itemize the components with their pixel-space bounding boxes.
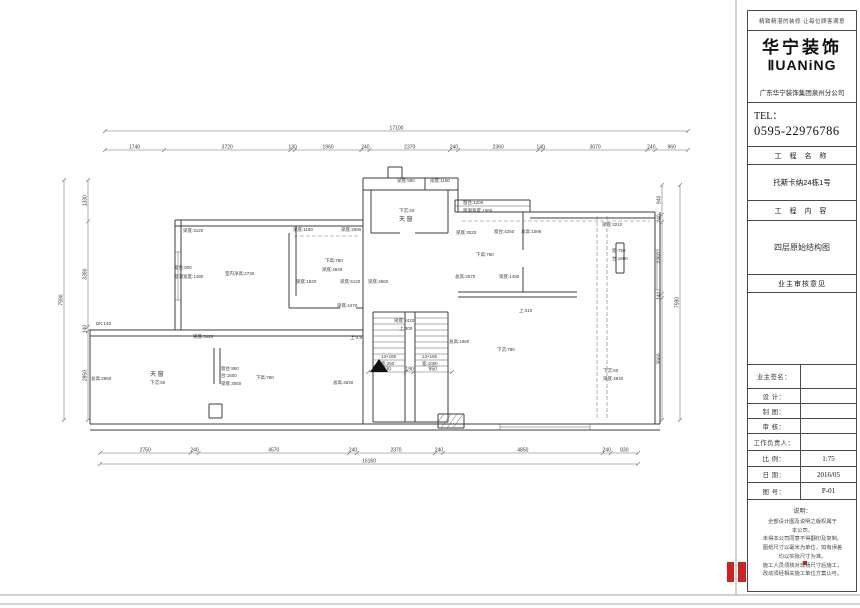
title-block: 精致精湛的装修 让每位顾客满意 华宁装饰 ⅡUANiNG 广东华宁装饰集团泉州分… <box>747 10 857 592</box>
svg-text:总高:2570: 总高:2570 <box>455 273 476 280</box>
svg-text:上:4.8: 上:4.8 <box>350 334 363 340</box>
svg-text:130: 130 <box>288 145 297 151</box>
table-row: 工作负责人： <box>748 434 856 451</box>
svg-text:总高:1960: 总高:1960 <box>449 338 470 345</box>
svg-text:240: 240 <box>435 448 444 454</box>
svg-text:3720: 3720 <box>222 145 233 151</box>
row-value <box>800 365 856 388</box>
notes-block: 说明： 全部设计图及说明之版权属于本公司，未得本公司同意不得翻印及复制。图纸尺寸… <box>748 500 856 581</box>
svg-text:3860: 3860 <box>657 353 663 364</box>
note-line: 本公司， <box>754 527 851 536</box>
svg-text:天 窗: 天 窗 <box>150 370 164 378</box>
note-line: 全部设计图及说明之版权属于 <box>754 518 851 527</box>
svg-text:窗台:950: 窗台:950 <box>221 365 239 372</box>
svg-text:2260: 2260 <box>657 252 663 263</box>
svg-text:总高:4840: 总高:4840 <box>333 379 354 386</box>
svg-text:240: 240 <box>603 448 612 454</box>
svg-text:窗台:4250: 窗台:4250 <box>494 228 515 235</box>
project-name-value: 托斯卡纳24栋1号 <box>748 165 856 201</box>
table-row: 图 号：P-01 <box>748 483 856 500</box>
svg-text:960: 960 <box>668 145 677 151</box>
svg-text:窗台:900: 窗台:900 <box>174 264 192 271</box>
svg-text:3070: 3070 <box>590 145 601 151</box>
row-label: 工作负责人： <box>748 434 800 450</box>
svg-text:940: 940 <box>657 195 663 204</box>
svg-text:4570: 4570 <box>268 448 279 454</box>
svg-text:梁底:5120: 梁底:5120 <box>340 278 361 285</box>
tel-number: 0595-22976786 <box>754 123 840 139</box>
svg-text:梁底:3050: 梁底:3050 <box>221 380 242 387</box>
row-label: 审 核： <box>748 419 800 433</box>
svg-text:240: 240 <box>349 448 358 454</box>
table-row: 业主签名： <box>748 365 856 389</box>
row-value <box>800 434 856 450</box>
svg-text:下沉:780: 下沉:780 <box>497 346 515 353</box>
svg-text:下高:780: 下高:780 <box>256 374 274 381</box>
table-row: 日 期：2016/05 <box>748 467 856 483</box>
svg-text:240: 240 <box>657 214 663 223</box>
row-label: 比 例： <box>748 451 800 466</box>
svg-text:窗-750: 窗-750 <box>612 247 626 254</box>
logo-chinese: 华宁装饰 <box>762 39 842 58</box>
row-label: 日 期： <box>748 467 800 482</box>
row-value: 1:75 <box>800 451 856 466</box>
note-line: 改动须经相关施工单位方案认可。 <box>754 570 851 579</box>
row-value <box>800 389 856 403</box>
svg-text:窗洞宽度:1490: 窗洞宽度:1490 <box>174 273 204 280</box>
svg-text:梁底:1190: 梁底:1190 <box>430 177 450 184</box>
project-content-header: 工 程 内 容 <box>748 201 856 221</box>
svg-text:梁底:1480: 梁底:1480 <box>499 273 520 280</box>
red-stamp-mark <box>738 562 746 582</box>
svg-text:7590: 7590 <box>675 297 681 308</box>
signature-table: 业主签名：设 计：制 图：审 核：工作负责人：比 例：1:75日 期：2016/… <box>748 365 856 500</box>
svg-text:梁底:4470: 梁底:4470 <box>337 302 358 309</box>
row-value: P-01 <box>800 483 856 499</box>
svg-text:1330: 1330 <box>83 195 89 206</box>
svg-text:梁底:3210: 梁底:3210 <box>602 221 623 228</box>
svg-text:下高:780: 下高:780 <box>325 257 343 264</box>
svg-text:天 窗: 天 窗 <box>399 215 413 223</box>
table-row: 审 核： <box>748 419 856 434</box>
drawing-sheet: 1710017403720130196024023702402360140307… <box>0 0 860 608</box>
table-row: 制 图： <box>748 404 856 419</box>
svg-text:上:300: 上:300 <box>399 325 413 331</box>
red-stamp-mark <box>727 562 734 582</box>
svg-text:梁底:1190: 梁底:1190 <box>293 226 313 233</box>
notes-title: 说明： <box>754 506 851 515</box>
row-value: 2016/05 <box>800 467 856 482</box>
notes-lines: 全部设计图及说明之版权属于本公司，未得本公司同意不得翻印及复制。图纸尺寸以毫米为… <box>754 518 851 579</box>
svg-text:2360: 2360 <box>493 145 504 151</box>
svg-text:窗台:1200: 窗台:1200 <box>463 199 484 206</box>
svg-text:下沉:50: 下沉:50 <box>150 379 166 386</box>
svg-text:2750: 2750 <box>140 448 151 454</box>
svg-text:240: 240 <box>361 145 370 151</box>
svg-text:台:1800: 台:1800 <box>612 255 628 262</box>
svg-text:下沉:20: 下沉:20 <box>399 207 415 214</box>
svg-text:台:1500: 台:1500 <box>221 372 237 379</box>
svg-text:梁底:4840: 梁底:4840 <box>603 375 624 382</box>
svg-text:梁底:2420: 梁底:2420 <box>394 317 415 324</box>
svg-text:4850: 4850 <box>517 448 528 454</box>
row-label: 业主签名： <box>748 365 800 388</box>
svg-text:梁底:4840: 梁底:4840 <box>322 266 343 273</box>
svg-text:7590: 7590 <box>59 294 65 305</box>
row-label: 图 号： <box>748 483 800 499</box>
svg-text:140: 140 <box>657 291 663 300</box>
telephone-block: TEL： 0595-22976786 <box>748 103 856 147</box>
svg-text:950: 950 <box>429 367 438 373</box>
svg-text:13×180: 13×180 <box>381 354 397 359</box>
svg-text:梁底:3020: 梁底:3020 <box>456 229 477 236</box>
svg-text:梁底:3120: 梁底:3120 <box>183 227 204 234</box>
svg-text:下高:780: 下高:780 <box>476 251 494 258</box>
row-value <box>800 404 856 418</box>
svg-text:DK:140: DK:140 <box>96 321 112 326</box>
svg-text:17100: 17100 <box>390 126 404 132</box>
company-name: 广东华宁装饰集团泉州分公司 <box>748 81 856 103</box>
note-line: 均以实际尺寸为准。 <box>754 553 851 562</box>
logo-latin: ⅡUANiNG <box>767 58 836 73</box>
svg-text:梁底:3120: 梁底:3120 <box>193 333 214 340</box>
floor-plan-svg: 1710017403720130196024023702402360140307… <box>0 0 860 608</box>
svg-text:总高:1098: 总高:1098 <box>521 228 542 235</box>
owner-review-header: 业主审核意见 <box>748 275 856 293</box>
svg-text:梁底:4960: 梁底:4960 <box>368 278 389 285</box>
svg-text:240: 240 <box>450 145 459 151</box>
note-line: 施工人员须核对现场尺寸后施工， <box>754 562 851 571</box>
svg-text:宽:1050: 宽:1050 <box>422 360 438 367</box>
row-value <box>800 419 856 433</box>
svg-text:240: 240 <box>190 448 199 454</box>
svg-text:240: 240 <box>647 145 656 151</box>
svg-text:830: 830 <box>620 448 629 454</box>
company-logo: 华宁装饰 ⅡUANiNG <box>748 31 856 81</box>
svg-text:上:310: 上:310 <box>519 307 533 313</box>
slogan-text: 精致精湛的装修 让每位顾客满意 <box>748 11 856 31</box>
svg-text:2850: 2850 <box>83 370 89 381</box>
svg-text:窗洞宽度:1560: 窗洞宽度:1560 <box>463 207 493 214</box>
svg-text:16160: 16160 <box>362 459 376 465</box>
svg-text:梁底:1820: 梁底:1820 <box>296 278 317 285</box>
svg-text:2370: 2370 <box>404 145 415 151</box>
owner-review-area <box>748 293 856 365</box>
table-row: 比 例：1:75 <box>748 451 856 467</box>
project-content-value: 四层原始结构图 <box>748 221 856 275</box>
note-line: 未得本公司同意不得翻印及复制。 <box>754 535 851 544</box>
svg-text:1960: 1960 <box>323 145 334 151</box>
svg-text:总高:2850: 总高:2850 <box>91 375 112 382</box>
svg-text:梁底:2600: 梁底:2600 <box>341 226 362 233</box>
tel-label: TEL： <box>754 110 782 123</box>
row-label: 设 计： <box>748 389 800 403</box>
svg-text:2370: 2370 <box>390 448 401 454</box>
svg-text:13×180: 13×180 <box>422 354 438 359</box>
svg-text:140: 140 <box>536 145 545 151</box>
svg-text:梁底:580: 梁底:580 <box>397 177 415 184</box>
table-row: 设 计： <box>748 389 856 404</box>
svg-text:室内净高:2730: 室内净高:2730 <box>225 270 255 277</box>
row-label: 制 图： <box>748 404 800 418</box>
project-name-header: 工 程 名 称 <box>748 147 856 165</box>
svg-text:190: 190 <box>405 367 414 373</box>
svg-text:3380: 3380 <box>83 268 89 279</box>
svg-text:1740: 1740 <box>129 145 140 151</box>
note-line: 图纸尺寸以毫米为单位，如有误差 <box>754 544 851 553</box>
svg-text:下沉:50: 下沉:50 <box>603 367 619 374</box>
svg-text:140: 140 <box>83 325 89 334</box>
